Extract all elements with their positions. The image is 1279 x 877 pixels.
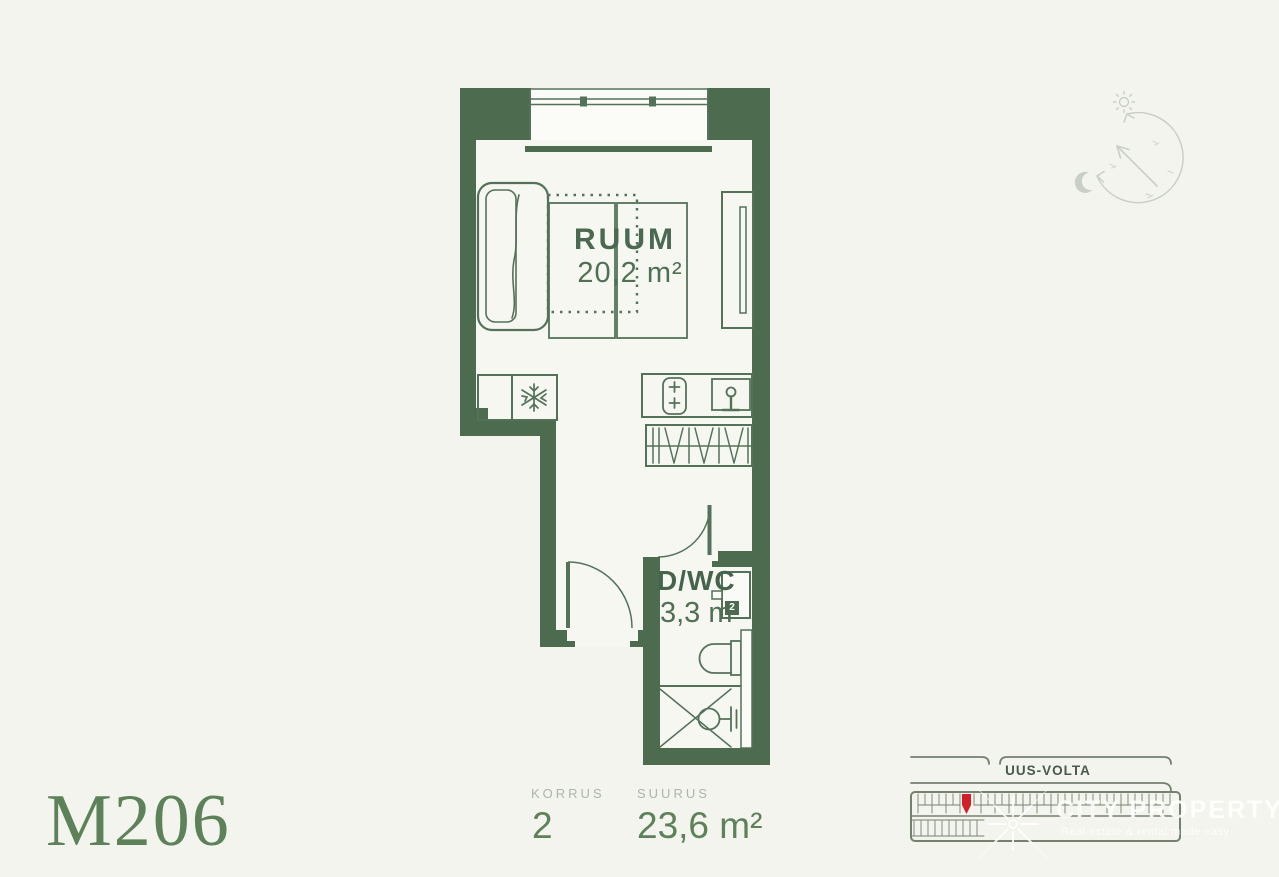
sun-path-arc xyxy=(1097,113,1183,203)
street-label: UUS-VOLTA xyxy=(975,763,1121,778)
size-label: SUURUS xyxy=(637,786,710,801)
bathroom-area: 3,3 m xyxy=(660,597,733,630)
window-sill xyxy=(525,146,712,152)
room-label: RUUM xyxy=(535,223,715,257)
floorplan-graphics xyxy=(0,0,1279,877)
floor-label: KORRUS xyxy=(531,786,605,801)
unit-highlight xyxy=(962,794,971,814)
watermark-logo-icon xyxy=(978,789,1048,859)
shower-glass-panel xyxy=(741,630,752,748)
sun-icon xyxy=(1114,92,1135,113)
plot-boundary xyxy=(911,783,1171,791)
north-arrow-icon xyxy=(1117,146,1157,186)
moon-icon xyxy=(1075,172,1093,193)
compass xyxy=(1075,92,1183,203)
unit-code: M206 xyxy=(46,779,231,864)
bathroom-area-superscript-badge: 2 xyxy=(725,601,739,615)
watermark-title: CITY PROPERTY xyxy=(1056,796,1279,825)
floor-value: 2 xyxy=(532,805,553,847)
floorplan-page: RUUM 20,2 m² D/WC 3,3 m 2 M206 KORRUS 2 … xyxy=(0,0,1279,877)
size-value: 23,6 m² xyxy=(637,805,762,847)
room-area: 20,2 m² xyxy=(535,257,725,290)
watermark-tagline: Real estate & rental made easy xyxy=(1061,826,1229,838)
bathroom-label: D/WC xyxy=(657,565,736,597)
